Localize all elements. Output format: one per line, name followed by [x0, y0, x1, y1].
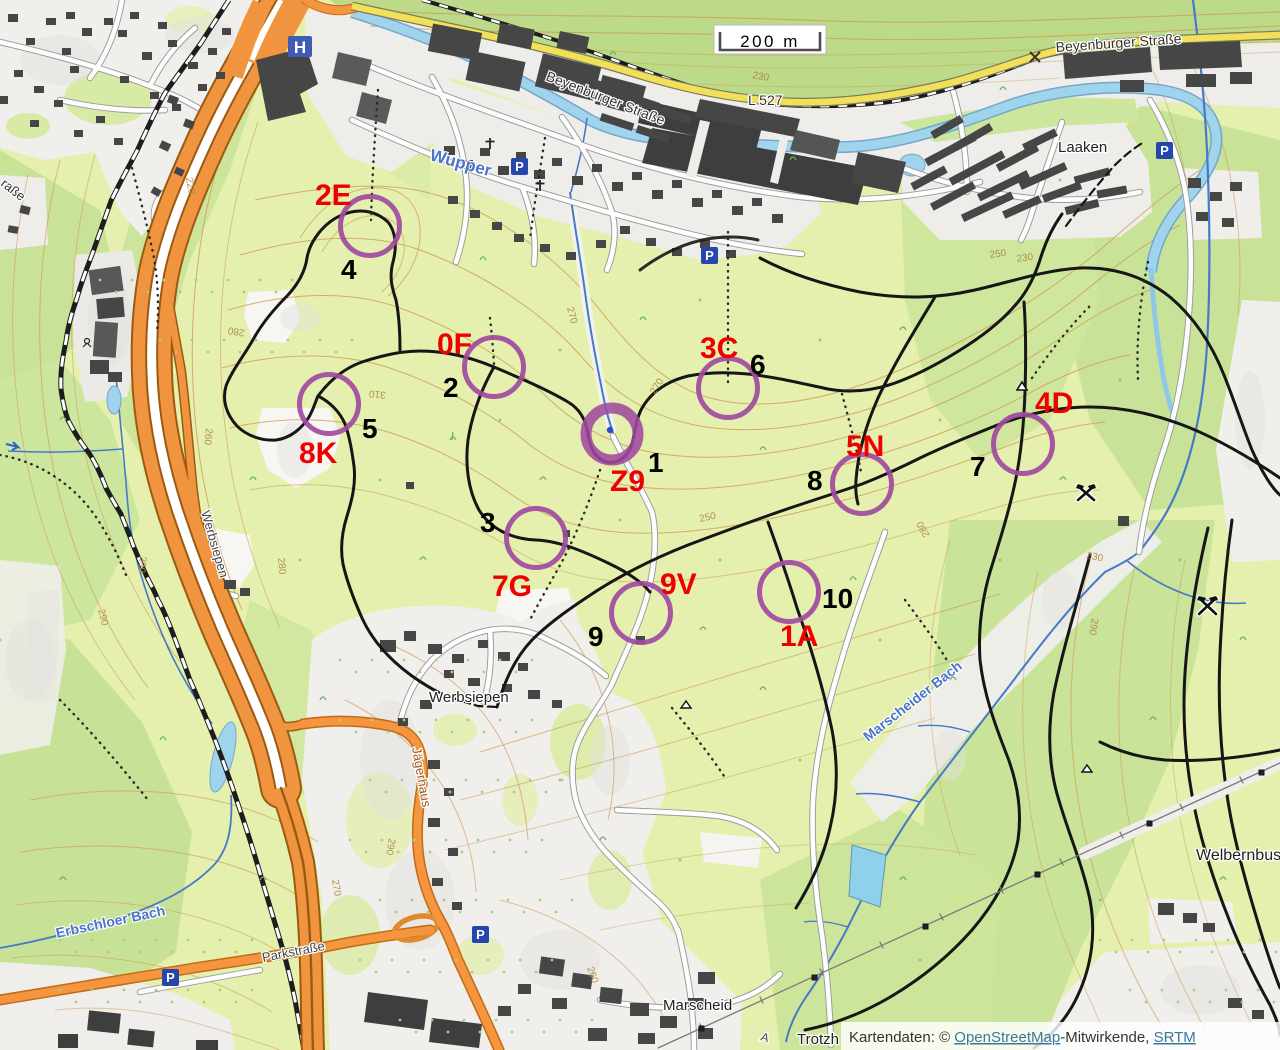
- svg-text:8K: 8K: [299, 437, 338, 470]
- svg-text:Laaken: Laaken: [1058, 139, 1107, 156]
- svg-text:6: 6: [750, 349, 766, 380]
- svg-text:1: 1: [648, 447, 664, 478]
- svg-text:9V: 9V: [660, 568, 697, 601]
- svg-text:Kartendaten: © OpenStreetMap-M: Kartendaten: © OpenStreetMap-Mitwirkende…: [849, 1029, 1196, 1046]
- svg-text:2: 2: [443, 372, 459, 403]
- svg-text:P: P: [166, 970, 175, 985]
- svg-text:5N: 5N: [846, 430, 884, 463]
- svg-text:P: P: [1160, 143, 1169, 158]
- svg-text:2E: 2E: [315, 179, 352, 212]
- svg-text:280: 280: [275, 557, 287, 575]
- svg-text:7G: 7G: [492, 570, 532, 603]
- svg-text:290: 290: [136, 556, 148, 574]
- svg-text:7: 7: [970, 451, 986, 482]
- svg-text:4D: 4D: [1035, 387, 1073, 420]
- svg-text:Welbernbusch: Welbernbusch: [1196, 847, 1280, 864]
- svg-text:260: 260: [202, 428, 214, 446]
- svg-text:L 527: L 527: [748, 92, 783, 108]
- svg-text:H: H: [294, 38, 306, 57]
- svg-text:4: 4: [341, 254, 357, 285]
- svg-text:P: P: [476, 927, 485, 942]
- svg-text:P: P: [705, 248, 714, 263]
- svg-text:200 m: 200 m: [740, 32, 800, 51]
- svg-text:3: 3: [480, 507, 496, 538]
- svg-text:P: P: [515, 159, 524, 174]
- svg-text:0F: 0F: [437, 328, 472, 361]
- svg-text:5: 5: [362, 413, 378, 444]
- svg-text:Trotzh: Trotzh: [797, 1031, 839, 1048]
- svg-text:Marscheid: Marscheid: [663, 997, 732, 1014]
- svg-text:9: 9: [588, 621, 604, 652]
- svg-text:3C: 3C: [700, 332, 738, 365]
- svg-text:10: 10: [822, 583, 853, 614]
- svg-text:Z9: Z9: [610, 465, 645, 498]
- svg-text:8: 8: [807, 465, 823, 496]
- svg-text:Werbsiepen: Werbsiepen: [429, 689, 509, 706]
- svg-text:1A: 1A: [780, 620, 818, 653]
- svg-text:310: 310: [368, 388, 386, 400]
